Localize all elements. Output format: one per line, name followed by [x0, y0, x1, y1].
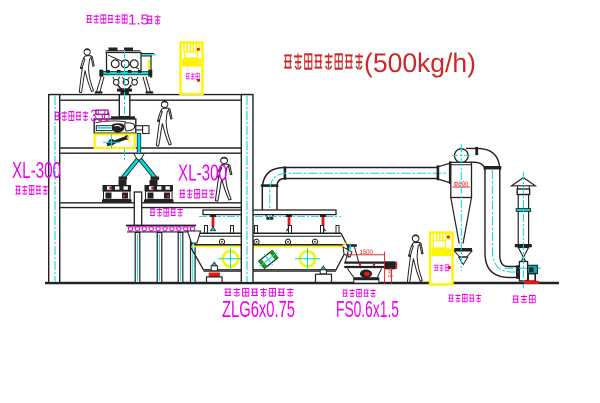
svg-text:XL-300: XL-300 — [12, 157, 61, 183]
svg-text:1500: 1500 — [360, 250, 374, 256]
svg-text:XL-300: XL-300 — [178, 160, 227, 186]
svg-text:350: 350 — [91, 106, 111, 126]
svg-text:540: 540 — [389, 268, 395, 278]
svg-text:(500kg/h): (500kg/h) — [364, 48, 476, 78]
svg-text:ZLG6x0.75: ZLG6x0.75 — [222, 296, 295, 322]
svg-text:1.5: 1.5 — [128, 12, 149, 29]
svg-text:FS0.6x1.5: FS0.6x1.5 — [336, 296, 399, 322]
